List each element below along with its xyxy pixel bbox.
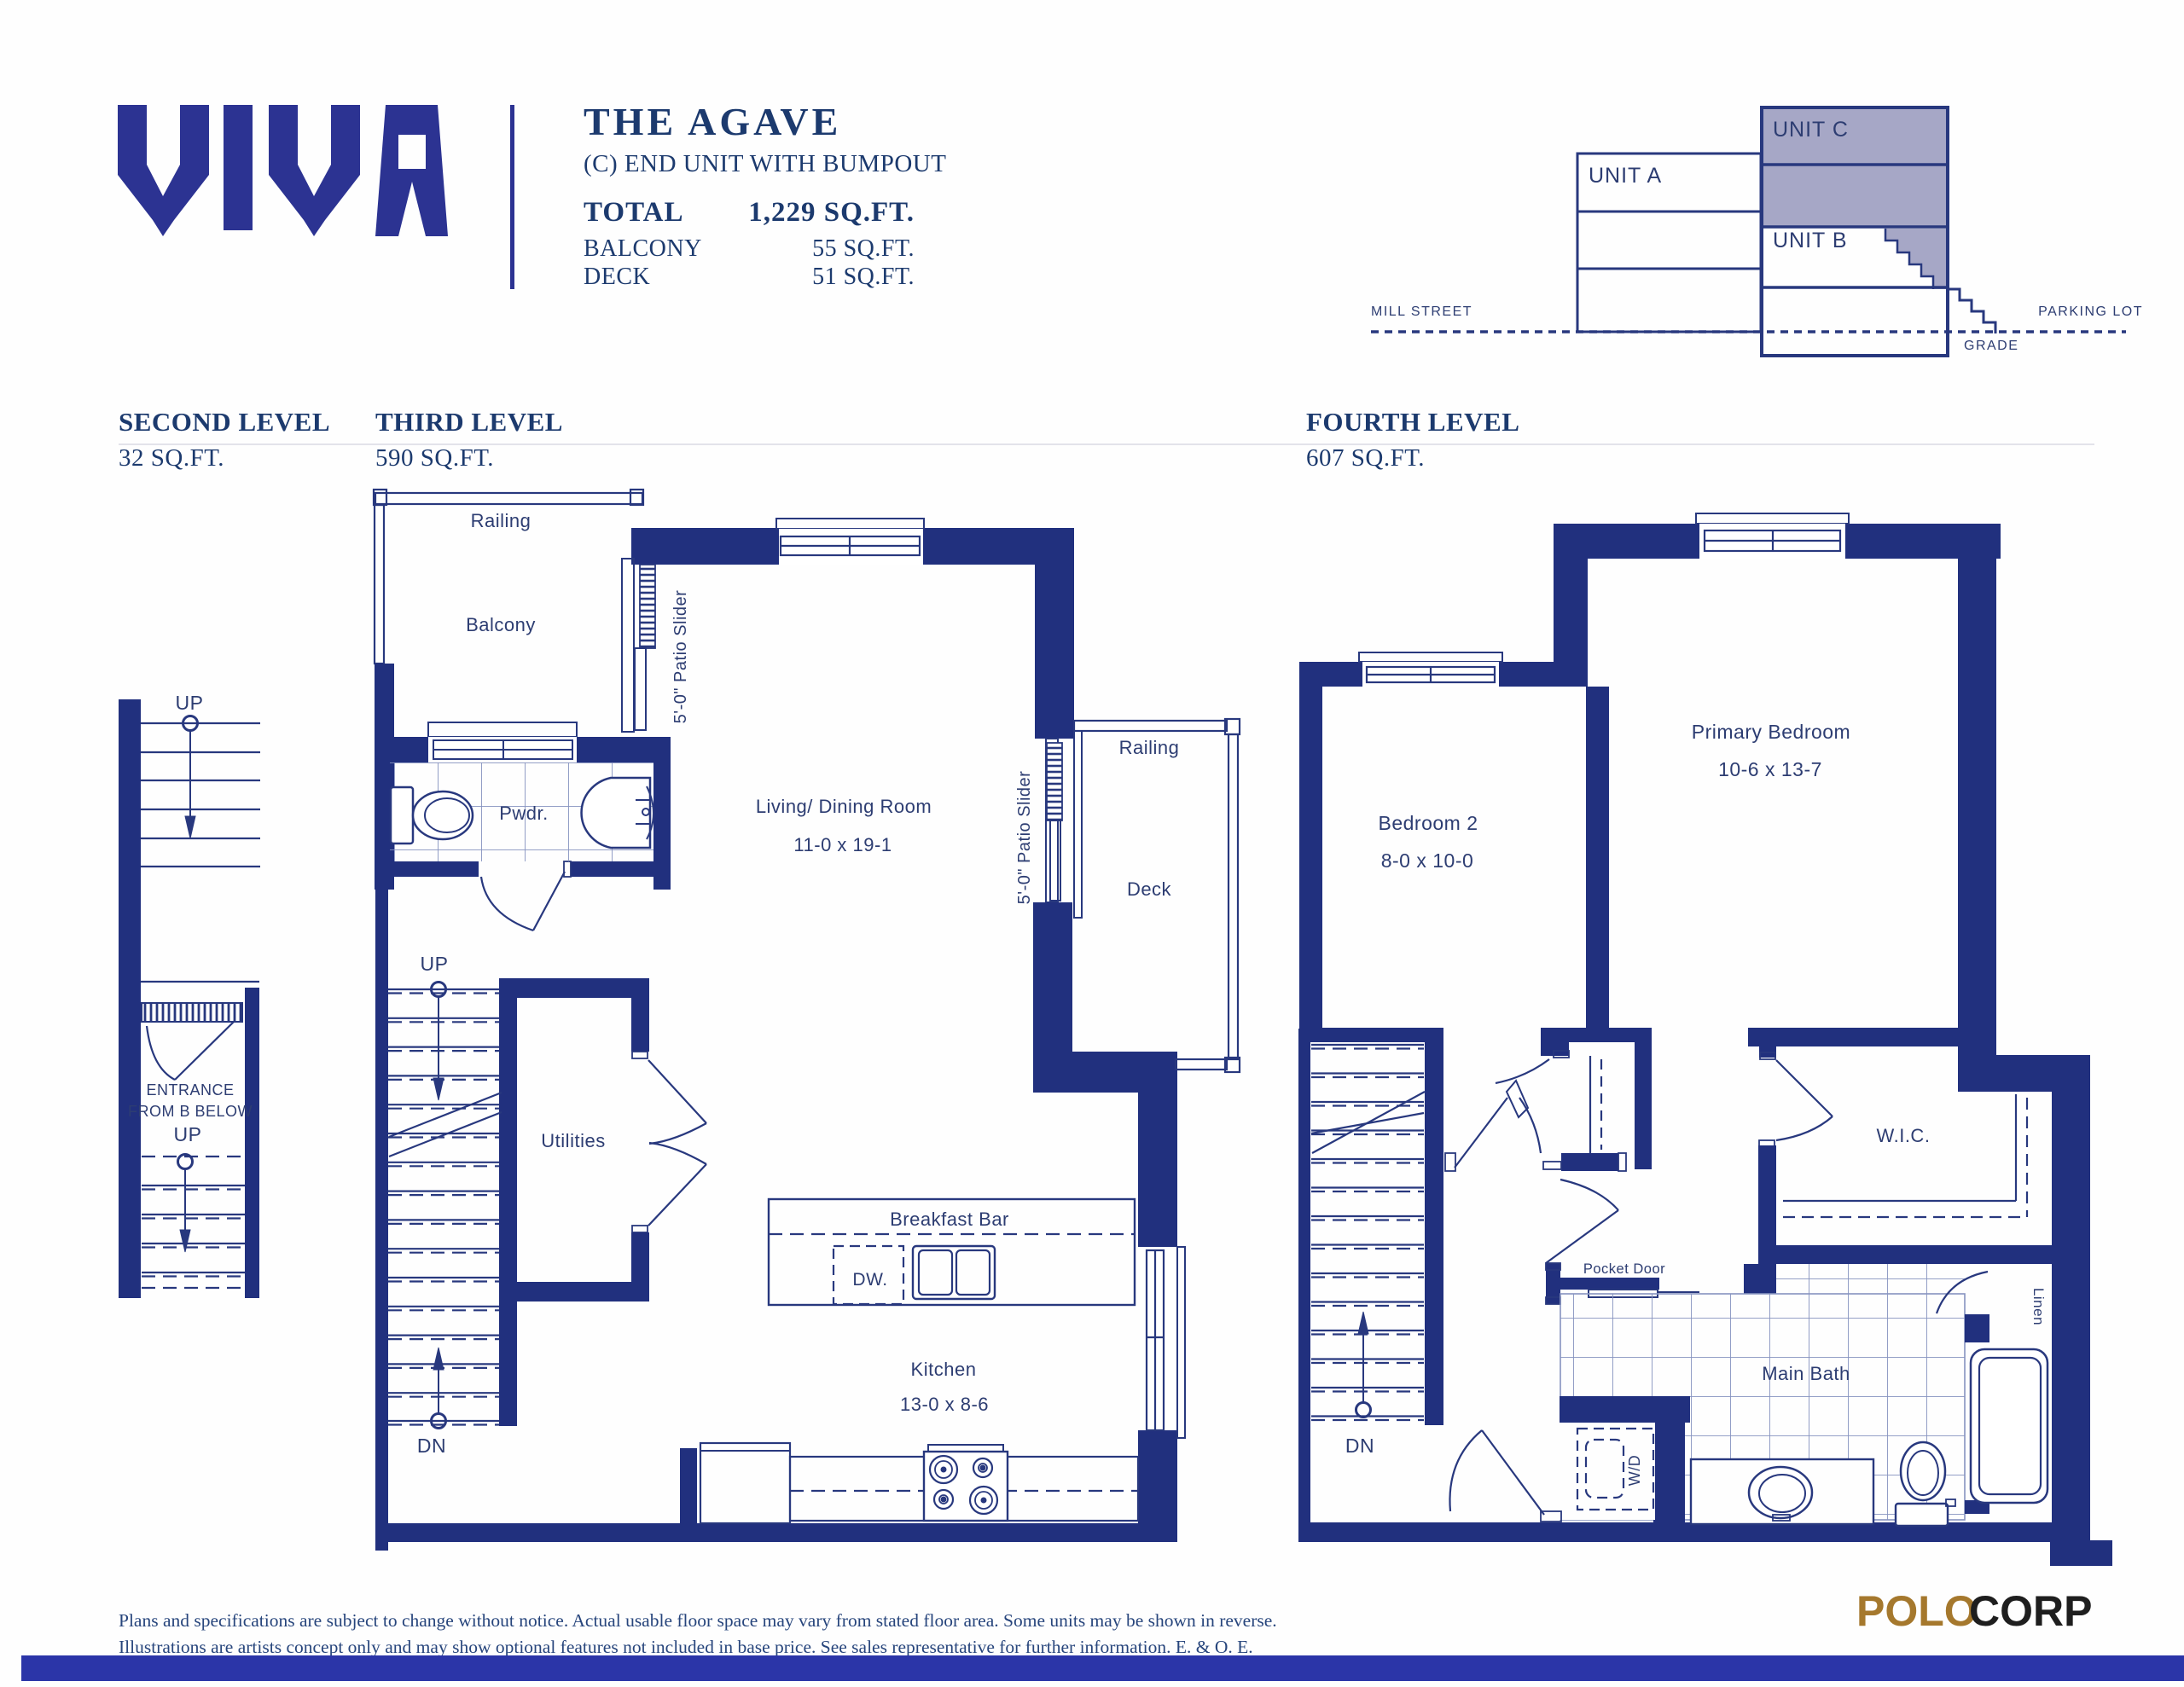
svg-text:THE AGAVE: THE AGAVE bbox=[584, 100, 841, 143]
svg-text:Bedroom 2: Bedroom 2 bbox=[1378, 812, 1478, 834]
svg-text:DW.: DW. bbox=[852, 1270, 887, 1290]
svg-text:10-6 x 13-7: 10-6 x 13-7 bbox=[1718, 758, 1822, 780]
svg-text:SECOND LEVEL: SECOND LEVEL bbox=[119, 407, 330, 437]
svg-text:W.I.C.: W.I.C. bbox=[1877, 1125, 1931, 1146]
svg-text:Linen: Linen bbox=[2030, 1288, 2047, 1325]
svg-text:51 SQ.FT.: 51 SQ.FT. bbox=[812, 264, 915, 290]
svg-text:Deck: Deck bbox=[1127, 878, 1172, 900]
svg-text:UP: UP bbox=[176, 692, 204, 714]
svg-text:UP: UP bbox=[421, 953, 449, 975]
svg-text:DN: DN bbox=[1345, 1435, 1374, 1457]
svg-text:8-0 x 10-0: 8-0 x 10-0 bbox=[1381, 849, 1474, 872]
svg-text:5'-0" Patio Slider: 5'-0" Patio Slider bbox=[671, 590, 690, 724]
svg-text:Breakfast Bar: Breakfast Bar bbox=[890, 1209, 1009, 1230]
svg-text:ENTRANCE: ENTRANCE bbox=[146, 1081, 234, 1099]
svg-text:THIRD LEVEL: THIRD LEVEL bbox=[375, 407, 563, 437]
svg-text:DECK: DECK bbox=[584, 264, 650, 290]
svg-text:W/D: W/D bbox=[1626, 1455, 1643, 1487]
svg-text:Plans and specifications are s: Plans and specifications are subject to … bbox=[119, 1610, 1277, 1631]
svg-text:Kitchen: Kitchen bbox=[911, 1359, 977, 1380]
svg-text:Pwdr.: Pwdr. bbox=[499, 803, 549, 824]
svg-text:13-0 x 8-6: 13-0 x 8-6 bbox=[900, 1394, 989, 1415]
svg-text:11-0 x 19-1: 11-0 x 19-1 bbox=[793, 834, 892, 855]
svg-text:(C) END UNIT WITH BUMPOUT: (C) END UNIT WITH BUMPOUT bbox=[584, 150, 946, 177]
svg-text:UP: UP bbox=[174, 1123, 202, 1145]
svg-text:Utilities: Utilities bbox=[541, 1130, 605, 1151]
svg-text:GRADE: GRADE bbox=[1964, 339, 2018, 353]
svg-text:UNIT B: UNIT B bbox=[1773, 229, 1848, 252]
svg-text:MILL STREET: MILL STREET bbox=[1371, 304, 1472, 319]
svg-text:FROM B BELOW: FROM B BELOW bbox=[128, 1103, 253, 1120]
svg-text:BALCONY: BALCONY bbox=[584, 235, 702, 262]
svg-text:DN: DN bbox=[417, 1435, 446, 1457]
svg-text:32 SQ.FT.: 32 SQ.FT. bbox=[119, 444, 224, 472]
svg-text:UNIT A: UNIT A bbox=[1589, 164, 1662, 188]
svg-text:CORP: CORP bbox=[1969, 1587, 2092, 1635]
svg-text:POLO: POLO bbox=[1856, 1587, 1978, 1635]
svg-text:1,229 SQ.FT.: 1,229 SQ.FT. bbox=[748, 197, 915, 228]
svg-text:Pocket Door: Pocket Door bbox=[1583, 1261, 1665, 1277]
svg-text:Railing: Railing bbox=[1119, 737, 1180, 758]
svg-text:5'-0" Patio Slider: 5'-0" Patio Slider bbox=[1015, 771, 1034, 905]
svg-text:Railing: Railing bbox=[471, 510, 531, 531]
svg-text:Illustrations are artists conc: Illustrations are artists concept only a… bbox=[119, 1637, 1253, 1657]
svg-text:TOTAL: TOTAL bbox=[584, 197, 684, 228]
svg-text:590 SQ.FT.: 590 SQ.FT. bbox=[375, 444, 494, 472]
svg-text:FOURTH LEVEL: FOURTH LEVEL bbox=[1306, 407, 1519, 437]
svg-text:607 SQ.FT.: 607 SQ.FT. bbox=[1306, 444, 1425, 472]
svg-text:PARKING LOT: PARKING LOT bbox=[2038, 304, 2143, 319]
svg-text:Living/ Dining Room: Living/ Dining Room bbox=[756, 796, 932, 817]
svg-text:UNIT C: UNIT C bbox=[1773, 118, 1849, 142]
svg-text:55 SQ.FT.: 55 SQ.FT. bbox=[812, 235, 915, 262]
svg-text:Main Bath: Main Bath bbox=[1762, 1363, 1850, 1384]
svg-text:Balcony: Balcony bbox=[466, 614, 536, 635]
svg-text:Primary Bedroom: Primary Bedroom bbox=[1692, 721, 1850, 743]
